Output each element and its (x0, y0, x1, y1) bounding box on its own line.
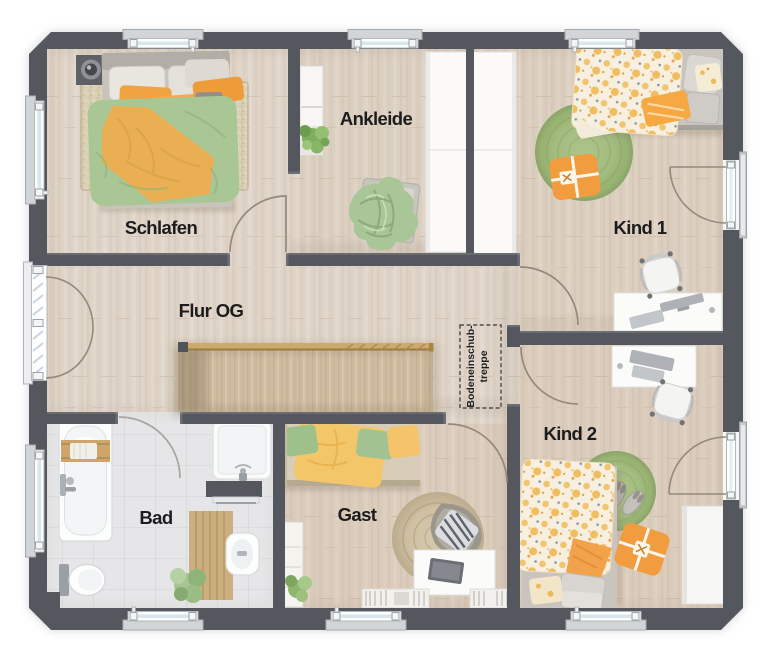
svg-text:treppe: treppe (478, 350, 490, 382)
svg-text:Gast: Gast (338, 504, 377, 525)
svg-text:Flur OG: Flur OG (179, 300, 244, 321)
svg-text:Bodeneinschub-: Bodeneinschub- (465, 325, 477, 408)
svg-text:Kind 2: Kind 2 (544, 423, 597, 444)
svg-text:Schlafen: Schlafen (125, 217, 198, 238)
svg-text:Bad: Bad (139, 507, 172, 528)
svg-text:Kind 1: Kind 1 (614, 217, 667, 238)
svg-text:Ankleide: Ankleide (340, 108, 413, 129)
